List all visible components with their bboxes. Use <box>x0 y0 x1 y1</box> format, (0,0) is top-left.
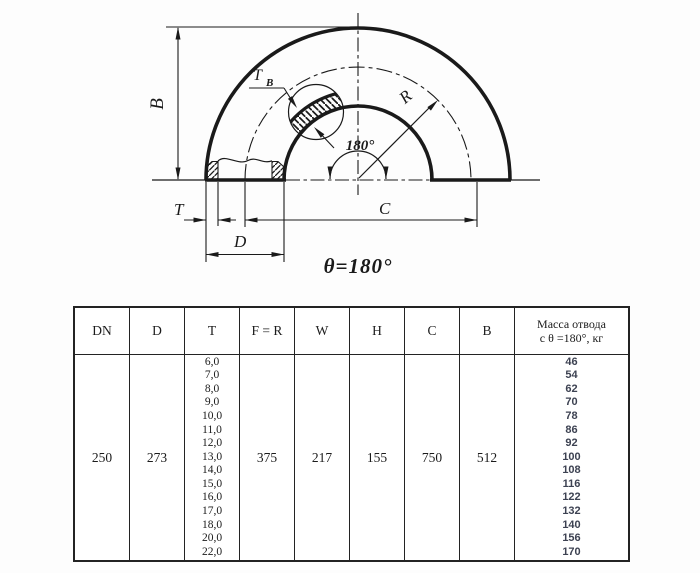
label-R: R <box>395 86 416 108</box>
header-h: H <box>350 308 405 355</box>
list-item: 13,0 <box>202 451 222 465</box>
header-fr: F = R <box>240 308 295 355</box>
header-mass-line2: с θ =180°, кг <box>540 331 603 345</box>
list-item: 8,0 <box>205 383 219 397</box>
header-c: C <box>405 308 460 355</box>
list-item: 46 <box>565 356 577 370</box>
value-t-list: 6,07,08,09,010,011,012,013,014,015,016,0… <box>185 355 240 560</box>
label-D: D <box>233 232 247 251</box>
header-b: B <box>460 308 515 355</box>
value-w: 217 <box>295 355 350 560</box>
list-item: 116 <box>563 478 581 492</box>
list-item: 15,0 <box>202 478 222 492</box>
list-item: 7,0 <box>205 369 219 383</box>
list-item: 156 <box>562 532 580 546</box>
dim-D <box>206 252 284 257</box>
list-item: 22,0 <box>202 546 222 560</box>
extension-lines <box>206 182 477 262</box>
value-mass-list: 46546270788692100108116122132140156170 <box>515 355 628 560</box>
header-t: T <box>185 308 240 355</box>
label-TB-subscript: B <box>265 77 273 89</box>
list-item: 100 <box>562 451 580 465</box>
header-d: D <box>130 308 185 355</box>
list-item: 16,0 <box>202 491 222 505</box>
header-mass-line1: Масса отвода <box>537 317 606 331</box>
list-item: 170 <box>562 546 580 560</box>
label-B: B <box>147 98 168 110</box>
list-item: 92 <box>565 437 577 451</box>
label-theta-180: θ=180° <box>324 254 393 278</box>
header-mass: Масса отвода с θ =180°, кг <box>515 308 628 355</box>
value-dn: 250 <box>75 355 130 560</box>
list-item: 62 <box>565 383 577 397</box>
value-b: 512 <box>460 355 515 560</box>
list-item: 17,0 <box>202 505 222 519</box>
list-item: 11,0 <box>202 424 222 438</box>
list-item: 140 <box>562 519 580 533</box>
label-T: T <box>174 200 185 219</box>
list-item: 20,0 <box>202 532 222 546</box>
list-item: 10,0 <box>202 410 222 424</box>
dim-C <box>245 218 477 223</box>
value-h: 155 <box>350 355 405 560</box>
dimension-table: DN D T F = R W H C B Масса отвода с θ =1… <box>73 306 630 562</box>
pipe-bend-drawing: B T D C R T B 180° θ=180° <box>0 0 700 300</box>
header-dn: DN <box>75 308 130 355</box>
value-fr: 375 <box>240 355 295 560</box>
dim-T <box>184 218 236 223</box>
value-d: 273 <box>130 355 185 560</box>
list-item: 14,0 <box>202 464 222 478</box>
label-TB: T <box>253 67 263 84</box>
list-item: 54 <box>565 369 577 383</box>
label-angle-180: 180° <box>346 138 375 154</box>
list-item: 78 <box>565 410 577 424</box>
value-c: 750 <box>405 355 460 560</box>
list-item: 12,0 <box>202 437 222 451</box>
header-w: W <box>295 308 350 355</box>
list-item: 108 <box>562 464 580 478</box>
list-item: 6,0 <box>205 356 219 370</box>
list-item: 86 <box>565 424 577 438</box>
page: B T D C R T B 180° θ=180° DN D T F = R W… <box>0 0 700 573</box>
list-item: 122 <box>562 491 580 505</box>
list-item: 18,0 <box>202 519 222 533</box>
list-item: 70 <box>565 396 577 410</box>
label-C: C <box>379 199 391 218</box>
list-item: 132 <box>562 505 580 519</box>
list-item: 9,0 <box>205 396 219 410</box>
